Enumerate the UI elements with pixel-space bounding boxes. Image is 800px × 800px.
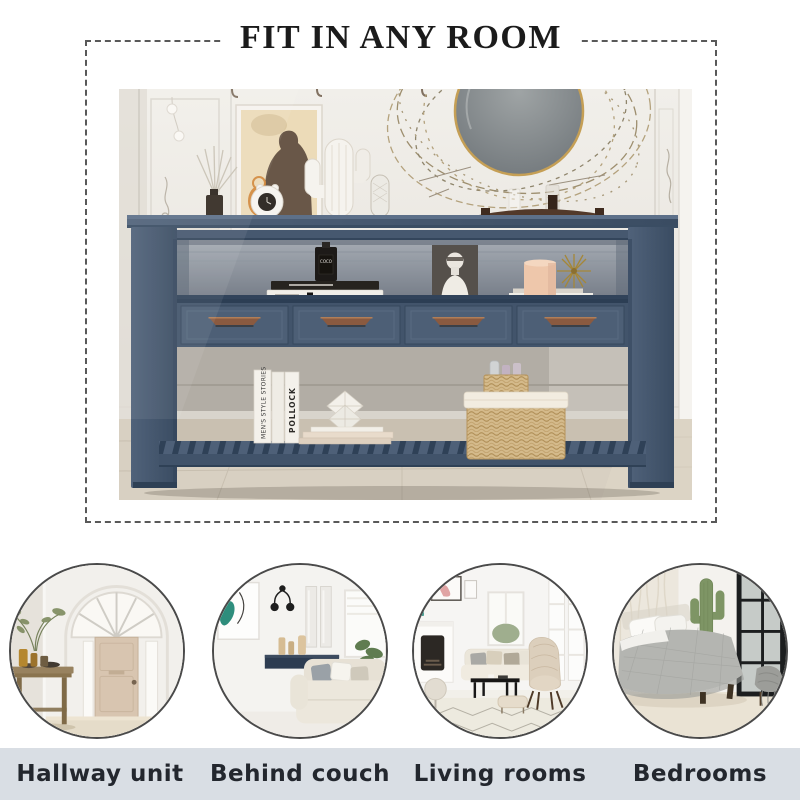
slatted-shelf [159, 441, 646, 467]
living-room-photo-circle [412, 563, 588, 739]
product-infographic: FIT IN ANY ROOM [0, 0, 800, 800]
behind-couch-scene [214, 565, 386, 737]
console-table-scene: COCO COCO CHANEL [119, 89, 692, 500]
bedroom-scene [614, 565, 786, 737]
hallway-scene [11, 565, 183, 737]
amber-vase [19, 649, 28, 667]
main-console-photo: COCO COCO CHANEL [119, 89, 692, 500]
abstract-wall-art [218, 583, 259, 640]
couch [290, 659, 386, 724]
book-spine-pollock: POLLOCK [288, 387, 297, 433]
room-labels-band: Hallway unit Behind couch Living rooms B… [0, 748, 800, 800]
fireplace [414, 622, 453, 683]
hallway-photo-circle [9, 563, 185, 739]
page-title: FIT IN ANY ROOM [222, 16, 580, 60]
dashed-frame: COCO COCO CHANEL [85, 40, 717, 523]
bedroom-photo-circle [612, 563, 788, 739]
perfume-label: COCO [320, 259, 332, 264]
room-label-hallway-unit: Hallway unit [0, 761, 200, 787]
coffee-glass [548, 195, 558, 211]
behind-couch-photo-circle [212, 563, 388, 739]
living-room-scene [414, 565, 586, 737]
room-label-bedrooms: Bedrooms [600, 761, 800, 787]
room-label-living-rooms: Living rooms [400, 761, 600, 787]
book-spine-large: MEN'S STYLE STORIES [261, 367, 268, 439]
room-label-behind-couch: Behind couch [200, 761, 400, 787]
wall-mirror-panel [306, 587, 317, 648]
front-door [95, 637, 138, 719]
